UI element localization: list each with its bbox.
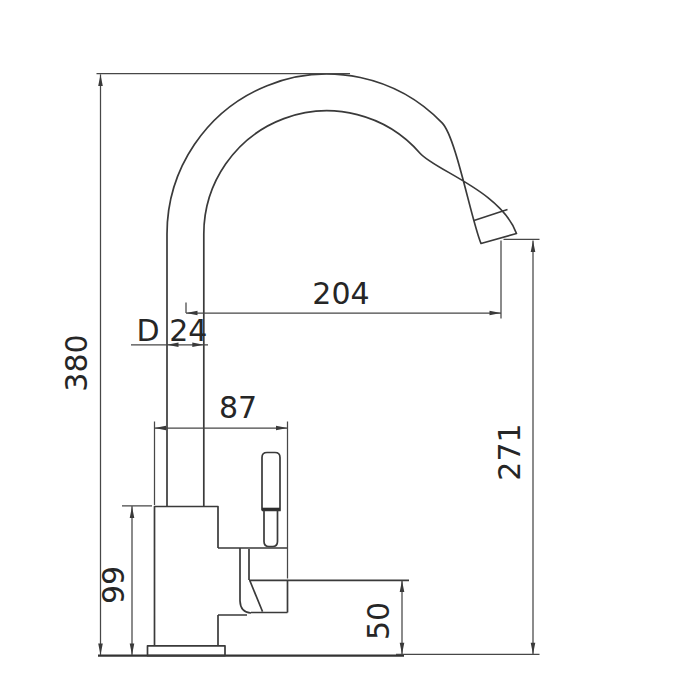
faucet-dimension-drawing: 380 204 D 24 87 271: [0, 0, 700, 700]
dimension-lines: [396, 581, 540, 655]
dimension-label-handle-span: 87: [219, 390, 257, 425]
dimension-spout-reach: 204: [186, 241, 501, 319]
dimension-label-outlet-height: 271: [492, 423, 527, 480]
dimension-tube-diameter: D 24: [131, 313, 208, 348]
handle-stem: [264, 511, 278, 547]
dimension-lines: [155, 422, 288, 579]
spout-aerator-line: [474, 210, 508, 221]
faucet-outline: [98, 74, 517, 656]
dimension-mount-height: 50: [361, 581, 540, 655]
dimension-lines: [97, 74, 351, 656]
dimension-label-mount-height: 50: [361, 602, 396, 640]
faucet-drawing-svg: 380 204 D 24 87 271: [0, 0, 700, 700]
base-flange: [148, 646, 226, 656]
dimension-body-height: 99: [96, 506, 153, 655]
dimension-label-tube-diameter: D 24: [137, 313, 208, 348]
dimension-handle-span: 87: [155, 390, 288, 579]
dimension-label-spout-reach: 204: [312, 276, 369, 311]
dimension-label-total-height: 380: [59, 334, 94, 391]
dimension-outlet-height: 271: [492, 239, 540, 654]
dimension-label-body-height: 99: [96, 566, 131, 604]
handle-grip: [262, 453, 280, 511]
